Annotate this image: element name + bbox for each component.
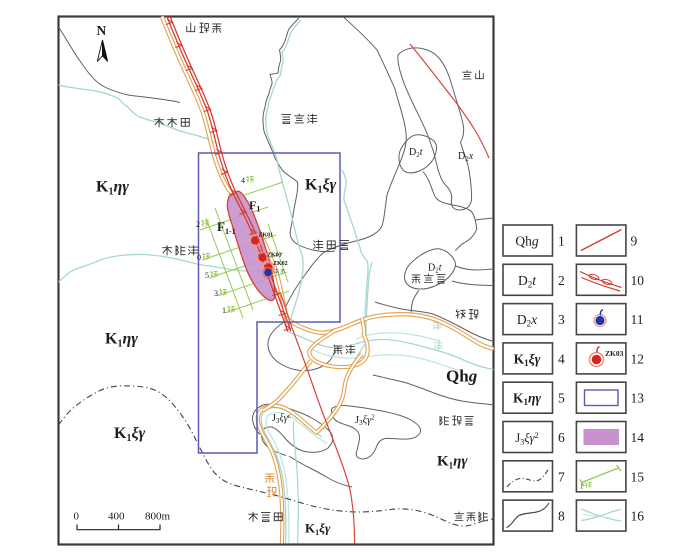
svg-text:5: 5	[205, 271, 209, 280]
svg-text:2: 2	[196, 220, 200, 229]
svg-text:N: N	[97, 23, 107, 38]
svg-text:3: 3	[214, 289, 218, 298]
svg-text:D2t: D2t	[409, 147, 423, 159]
svg-text:9: 9	[631, 234, 638, 249]
svg-text:16: 16	[631, 509, 645, 524]
svg-text:K1ηγ: K1ηγ	[105, 331, 138, 350]
svg-text:4: 4	[241, 176, 245, 185]
svg-text:D2t: D2t	[428, 263, 442, 275]
svg-text:4: 4	[558, 351, 565, 366]
svg-text:13: 13	[631, 391, 645, 406]
svg-text:14: 14	[631, 430, 645, 445]
svg-text:15: 15	[631, 469, 645, 484]
svg-text:1: 1	[580, 483, 584, 491]
svg-text:10: 10	[631, 273, 645, 288]
svg-text:K1ηγ: K1ηγ	[437, 454, 468, 471]
svg-text:ZK03: ZK03	[605, 349, 624, 358]
svg-text:8: 8	[558, 509, 565, 524]
svg-text:ZK01: ZK01	[259, 233, 274, 239]
svg-text:K1ηγ: K1ηγ	[513, 391, 541, 408]
svg-text:0: 0	[197, 253, 201, 262]
svg-text:ZK03: ZK03	[267, 253, 282, 259]
svg-text:400: 400	[108, 511, 125, 523]
svg-text:Qhg: Qhg	[515, 234, 539, 249]
svg-text:7: 7	[558, 469, 565, 484]
svg-text:ZK02: ZK02	[273, 261, 288, 267]
svg-text:5: 5	[558, 391, 565, 406]
svg-text:1: 1	[558, 234, 565, 249]
svg-text:D2t: D2t	[518, 273, 537, 290]
svg-text:1: 1	[222, 306, 226, 315]
svg-text:2: 2	[558, 273, 565, 288]
svg-text:800m: 800m	[145, 511, 171, 523]
svg-text:12: 12	[631, 351, 645, 366]
svg-text:6: 6	[558, 430, 565, 445]
svg-text:3: 3	[558, 312, 565, 327]
svg-text:Qhg: Qhg	[446, 367, 478, 386]
svg-text:0: 0	[74, 511, 80, 523]
svg-text:K1ηγ: K1ηγ	[96, 179, 129, 198]
svg-text:11: 11	[631, 312, 644, 327]
